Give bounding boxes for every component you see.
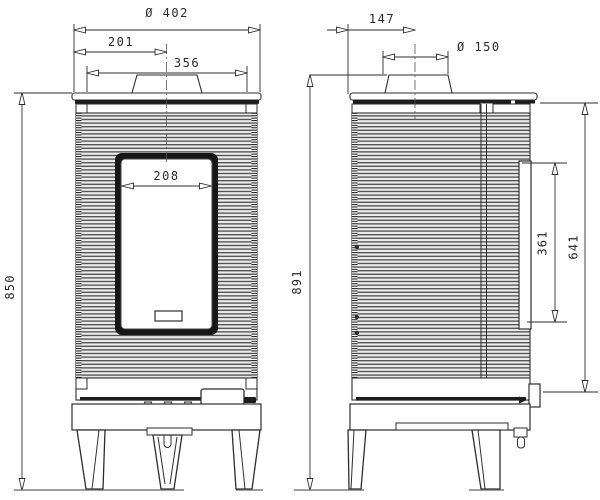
dim-label-height-641: 641	[567, 234, 581, 259]
stove-dimension-drawing: Ø 402 201 356 208 850 147 Ø 150 891 361 …	[0, 0, 600, 500]
front-bottom-step-right	[246, 378, 257, 389]
dim-label-flue-offset: 201	[108, 35, 134, 49]
side-bottom-band	[352, 378, 530, 400]
side-view	[348, 75, 540, 489]
front-control-box	[201, 389, 244, 405]
dim-label-147: 147	[369, 12, 395, 26]
side-leg-bracket	[396, 423, 508, 430]
front-rib-edge-left	[76, 113, 82, 378]
front-leg-center	[153, 435, 182, 489]
side-top-gap-front	[515, 101, 535, 104]
front-top-gap	[75, 100, 259, 104]
side-leg-front	[472, 430, 500, 489]
front-bottom-step-left	[76, 378, 87, 389]
side-leg-back	[348, 430, 366, 489]
front-rib-edge-right	[252, 113, 258, 378]
front-center-leg-mount	[147, 428, 192, 435]
side-ribbed-body	[352, 113, 530, 378]
front-flue-collar	[132, 75, 202, 93]
side-glass-edge	[519, 161, 531, 329]
dim-label-flue-diameter: Ø 150	[457, 40, 501, 54]
side-screw-3	[355, 331, 359, 335]
side-door-latch	[529, 384, 540, 407]
drawing-svg: Ø 402 201 356 208 850 147 Ø 150 891 361 …	[0, 0, 600, 500]
side-screw-2	[355, 315, 359, 319]
dim-label-height-850: 850	[3, 274, 17, 299]
front-door-vent	[155, 311, 182, 321]
front-control-box-tab	[244, 397, 256, 403]
dim-label-top-plate-width: 356	[174, 56, 200, 70]
side-air-pin	[518, 437, 525, 448]
dim-label-overall-width: Ø 402	[145, 6, 189, 20]
front-base	[72, 404, 261, 430]
side-screw-1	[355, 245, 359, 249]
side-top-band	[352, 104, 530, 113]
dim-label-glass-height: 361	[536, 230, 550, 255]
dim-label-glass-width: 208	[153, 169, 179, 183]
dim-label-height-891: 891	[290, 269, 304, 294]
front-leg-right	[232, 430, 260, 489]
side-flue-collar	[385, 75, 452, 93]
front-door-glass	[121, 159, 212, 329]
side-top-plate	[350, 93, 537, 100]
side-bottom-gap	[356, 397, 526, 401]
side-air-pin-top	[514, 428, 527, 437]
front-leg-left	[77, 430, 105, 489]
